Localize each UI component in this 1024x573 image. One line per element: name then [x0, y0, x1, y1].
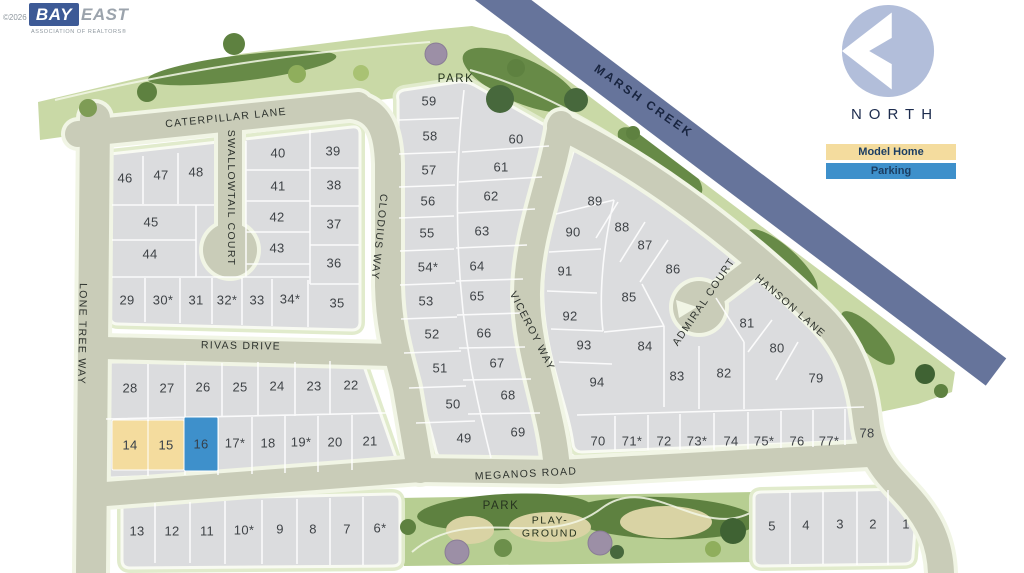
- logo-bay: BAY: [29, 3, 79, 26]
- plat-map: 123456*78910*11121314151617*1819*2021222…: [0, 0, 1024, 573]
- logo-tagline: ASSOCIATION OF REALTORS®: [31, 29, 126, 35]
- legend-parking-label: Parking: [871, 165, 911, 177]
- logo-east: EAST: [81, 3, 128, 26]
- legend-parking: Parking: [826, 163, 956, 179]
- legend-model-home-label: Model Home: [858, 146, 923, 158]
- copyright-text: ©2026: [3, 13, 27, 22]
- north-arrow-icon: [841, 4, 935, 98]
- brand-logo: ©2026 BAY EAST ASSOCIATION OF REALTORS®: [2, 2, 192, 44]
- legend-model-home: Model Home: [826, 144, 956, 160]
- north-label: NORTH: [836, 106, 947, 123]
- legend: Model Home Parking: [826, 144, 956, 182]
